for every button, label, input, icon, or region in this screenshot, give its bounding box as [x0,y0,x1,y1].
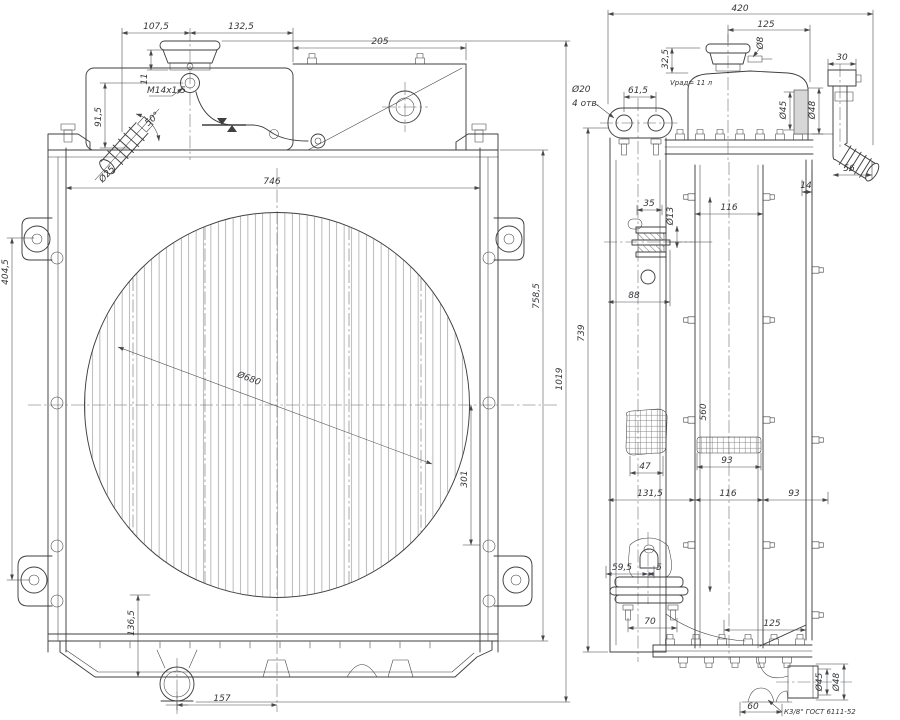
dim-136-5-label: 136,5 [127,610,137,636]
dim-746-label: 746 [263,177,280,187]
side-dimensions: 420 125 Ø8 32,5 30 Ø20 4 отв. 61,5 Vрад=… [571,4,873,716]
dim-93-bot-label: 93 [788,489,800,499]
holes-4-label: 4 отв. [572,99,600,109]
dim-739-label: 739 [577,324,587,341]
fitting-note: К3/8" ГОСТ 6111-52 [784,708,856,716]
dim-125-bot-label: 125 [763,619,780,629]
angle-50-label: 50° [143,110,162,128]
dim-32-5-label: 32,5 [661,49,671,69]
dim-116-mid-label: 116 [720,203,737,213]
dim-91-5-label: 91,5 [94,107,104,127]
dim-125-top-label: 125 [757,20,774,30]
drain-fitting-detail [742,657,818,702]
dia-45-top-label: Ø45 [778,100,789,120]
dim-35-label: 35 [643,199,655,209]
side-top-tank [665,44,833,154]
dia-13-label: Ø13 [665,206,676,226]
dim-205-label: 205 [371,37,388,47]
outlet-stub-section [794,90,808,134]
overflow-tube [196,92,308,141]
bottom-tank [60,641,492,705]
dim-132-5-label: 132,5 [228,22,254,32]
front-view: 107,5 132,5 205 11 M14x1,5 91,5 50° Ø25 … [1,22,570,714]
radiator-technical-drawing: 107,5 132,5 205 11 M14x1,5 91,5 50° Ø25 … [0,0,900,720]
dim-88-label: 88 [628,291,640,301]
overflow-stub [748,56,762,62]
dim-14-label: 14 [800,181,812,191]
dim-301-label: 301 [460,470,470,487]
dim-116-bot-label: 116 [719,489,736,499]
dim-70-label: 70 [644,617,656,627]
dim-93-mid-label: 93 [721,456,733,466]
thread-m14-label: M14x1,5 [147,86,186,96]
dim-5-label: 5 [656,563,662,573]
dim-758-5-label: 758,5 [532,283,542,309]
side-centerlines [600,34,852,682]
dim-60-label: 60 [747,702,759,712]
dia-48-bot-label: Ø48 [831,672,842,692]
dia-20-label: Ø20 [571,84,591,95]
side-inlet-pipe [828,70,882,184]
bottom-mount-detail [610,538,688,620]
dia-45-bot-label: Ø45 [814,672,825,692]
dia-48-top-label: Ø48 [807,100,818,120]
dim-420-label: 420 [731,4,748,14]
dim-107-5-label: 107,5 [143,22,169,32]
dim-131-5-label: 131,5 [637,489,663,499]
fan-shroud [85,213,470,598]
side-view: 420 125 Ø8 32,5 30 Ø20 4 отв. 61,5 Vрад=… [571,4,882,716]
drawing-sheet: 107,5 132,5 205 11 M14x1,5 91,5 50° Ø25 … [0,0,900,720]
dim-560-label: 560 [699,403,709,420]
dia-25-label: Ø25 [96,164,117,186]
volume-note: Vрад= 11 л [670,79,713,87]
dim-11-label: 11 [140,73,150,84]
dim-56-label: 56 [843,164,855,174]
dim-47-label: 47 [639,462,651,472]
dim-157-label: 157 [213,694,230,704]
dim-30-label: 30 [836,53,848,63]
dim-61-5-label: 61,5 [628,86,648,96]
top-tank [48,41,498,177]
dim-404-5-label: 404,5 [1,259,11,285]
dim-1019-label: 1019 [555,367,565,390]
dim-59-5-label: 59,5 [612,563,632,573]
dia-8-label: Ø8 [755,36,766,50]
mesh-details [626,409,761,455]
